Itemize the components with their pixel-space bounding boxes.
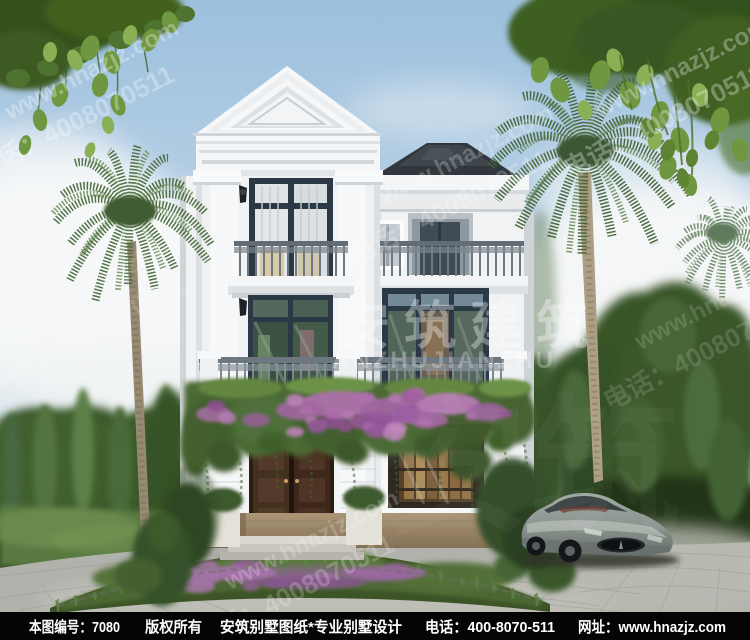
svg-text:电话：400-8070-511: 电话：400-8070-511 <box>425 618 555 636</box>
svg-text:本图编号：7080: 本图编号：7080 <box>29 618 120 636</box>
svg-text:安筑: 安筑 <box>380 384 680 552</box>
svg-text:版权所有: 版权所有 <box>145 618 202 636</box>
svg-text:安筑别墅图纸*专业别墅设计: 安筑别墅图纸*专业别墅设计 <box>220 618 402 636</box>
svg-text:ANZHUJIANZHU: ANZHUJIANZHU <box>332 347 556 374</box>
svg-text:网址：www.hnazjz.com: 网址：www.hnazjz.com <box>578 618 726 636</box>
